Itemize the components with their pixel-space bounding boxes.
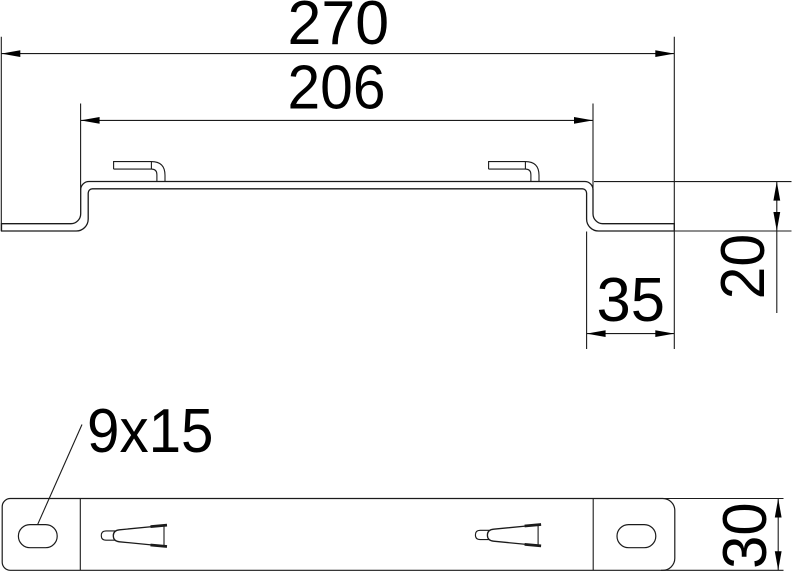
svg-text:20: 20: [708, 234, 778, 300]
svg-text:30: 30: [710, 502, 780, 569]
svg-text:9x15: 9x15: [87, 396, 214, 466]
svg-text:270: 270: [288, 0, 390, 58]
svg-text:206: 206: [288, 52, 386, 122]
svg-text:35: 35: [597, 265, 666, 335]
